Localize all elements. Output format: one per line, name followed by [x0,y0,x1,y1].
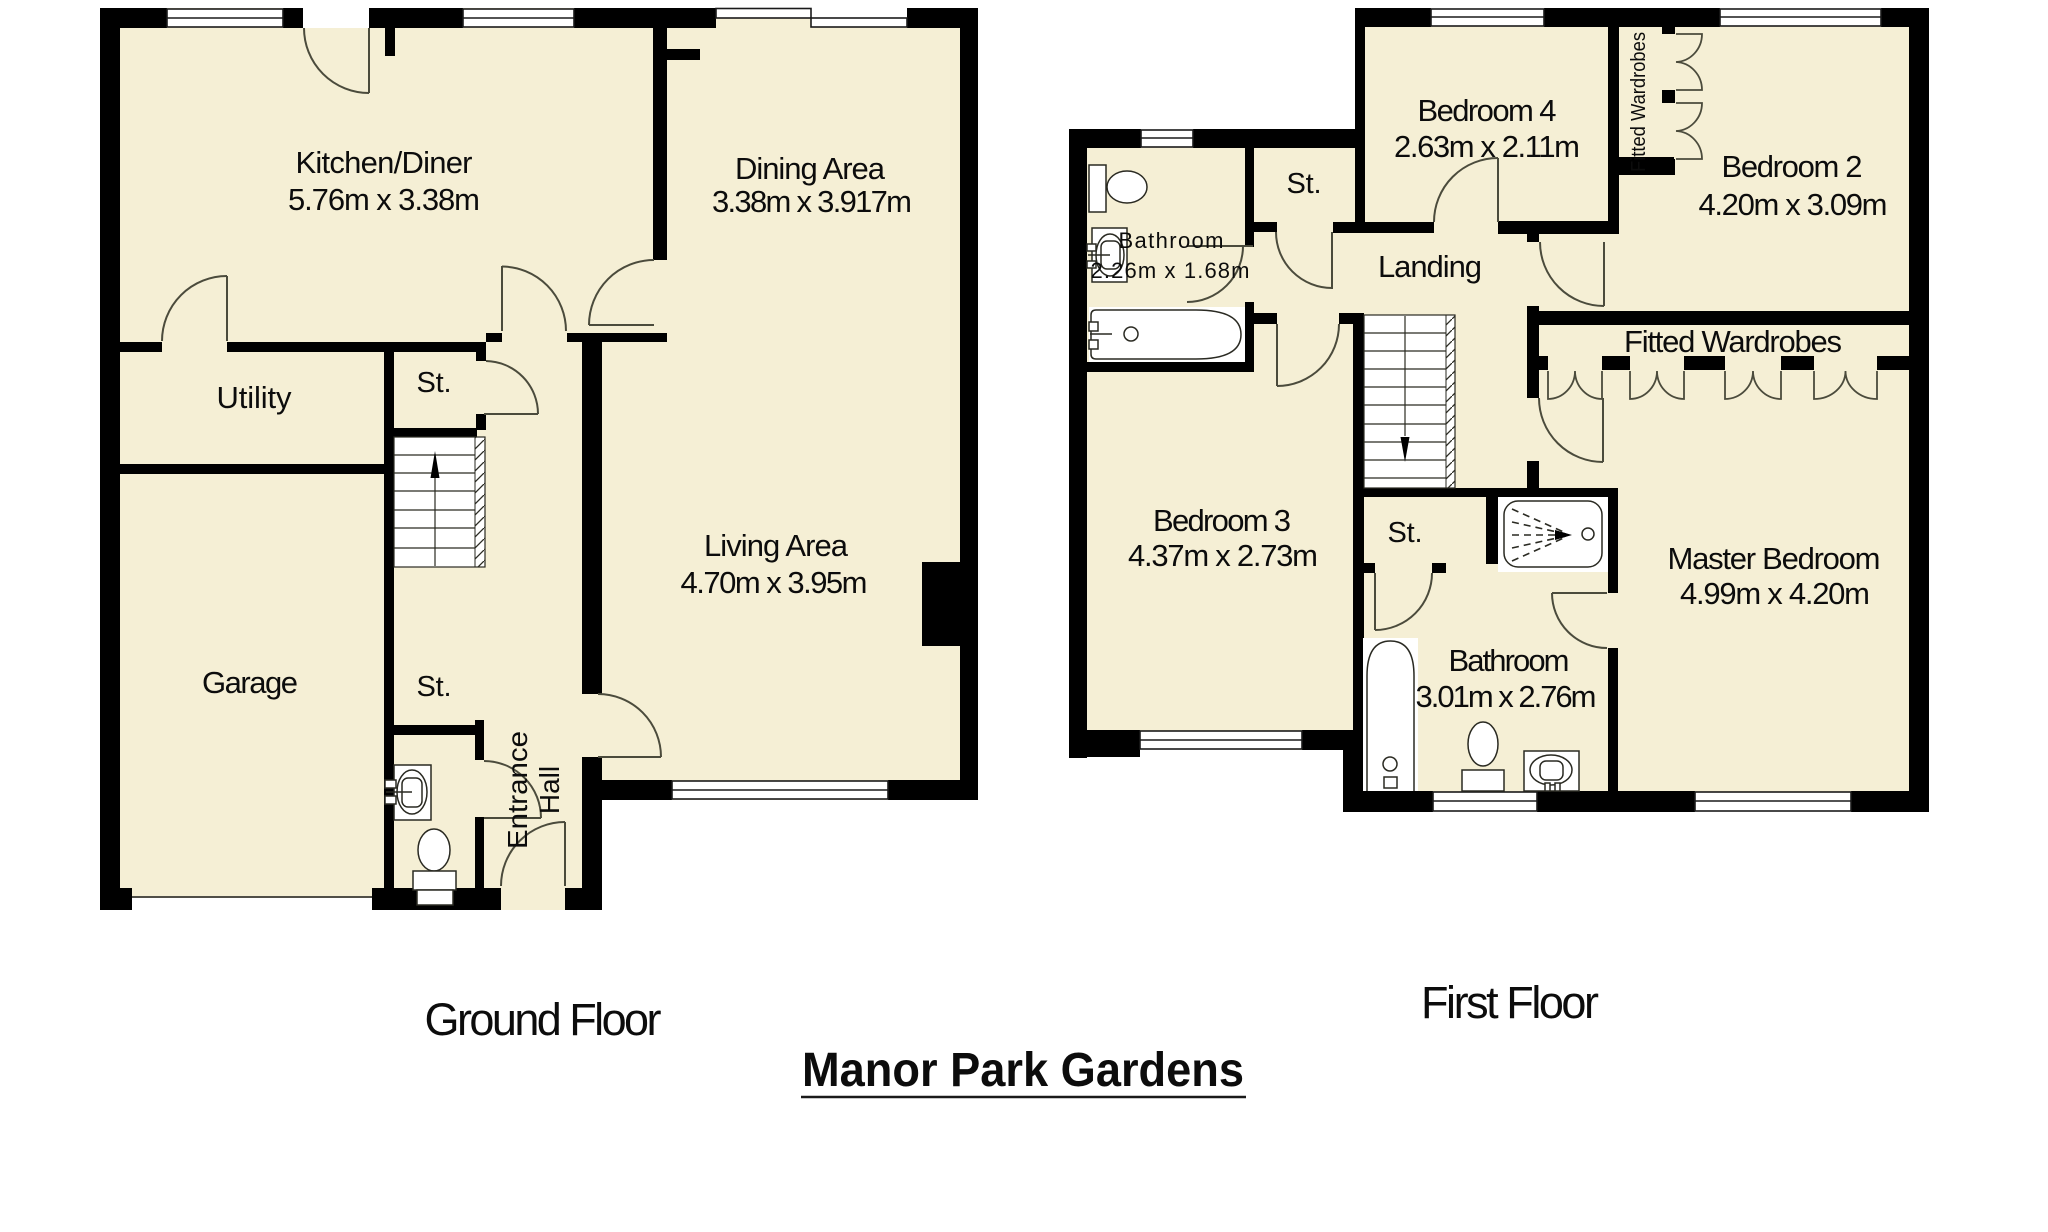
svg-text:St.: St. [417,367,452,399]
svg-text:3.01m x 2.76m: 3.01m x 2.76m [1416,679,1597,714]
svg-text:4.99m x 4.20m: 4.99m x 4.20m [1680,576,1870,611]
svg-text:Utility: Utility [217,380,293,415]
svg-text:Fitted Wardrobes: Fitted Wardrobes [1624,324,1842,359]
svg-text:Master Bedroom: Master Bedroom [1668,541,1881,576]
svg-text:First Floor: First Floor [1421,977,1599,1028]
svg-text:St.: St. [1388,517,1423,549]
svg-text:Ground Floor: Ground Floor [425,994,662,1045]
svg-text:Bedroom 4: Bedroom 4 [1418,93,1557,128]
svg-text:4.70m x 3.95m: 4.70m x 3.95m [681,565,868,600]
svg-text:Bedroom 3: Bedroom 3 [1153,503,1291,538]
svg-text:2.26m x 1.68m: 2.26m x 1.68m [1091,258,1250,283]
svg-text:Garage: Garage [202,665,298,700]
svg-text:Hall: Hall [534,766,565,814]
svg-text:3.38m x 3.917m: 3.38m x 3.917m [712,184,912,219]
svg-text:Living Area: Living Area [704,528,849,563]
svg-text:Entrance: Entrance [502,731,533,849]
svg-text:Landing: Landing [1378,249,1482,284]
svg-text:4.37m x 2.73m: 4.37m x 2.73m [1128,538,1318,573]
svg-text:Bathroom: Bathroom [1449,643,1570,678]
svg-text:Fitted Wardrobes: Fitted Wardrobes [1628,32,1650,172]
svg-text:Bathroom: Bathroom [1119,228,1224,253]
svg-text:Manor Park Gardens: Manor Park Gardens [802,1044,1244,1097]
svg-text:5.76m x 3.38m: 5.76m x 3.38m [288,182,480,217]
svg-text:Dining Area: Dining Area [735,151,886,186]
svg-text:4.20m x 3.09m: 4.20m x 3.09m [1699,187,1888,222]
svg-text:Kitchen/Diner: Kitchen/Diner [296,145,473,180]
svg-text:St.: St. [1287,168,1322,200]
svg-text:2.63m x 2.11m: 2.63m x 2.11m [1394,129,1580,164]
svg-text:Bedroom 2: Bedroom 2 [1722,149,1863,184]
svg-text:St.: St. [417,671,452,703]
